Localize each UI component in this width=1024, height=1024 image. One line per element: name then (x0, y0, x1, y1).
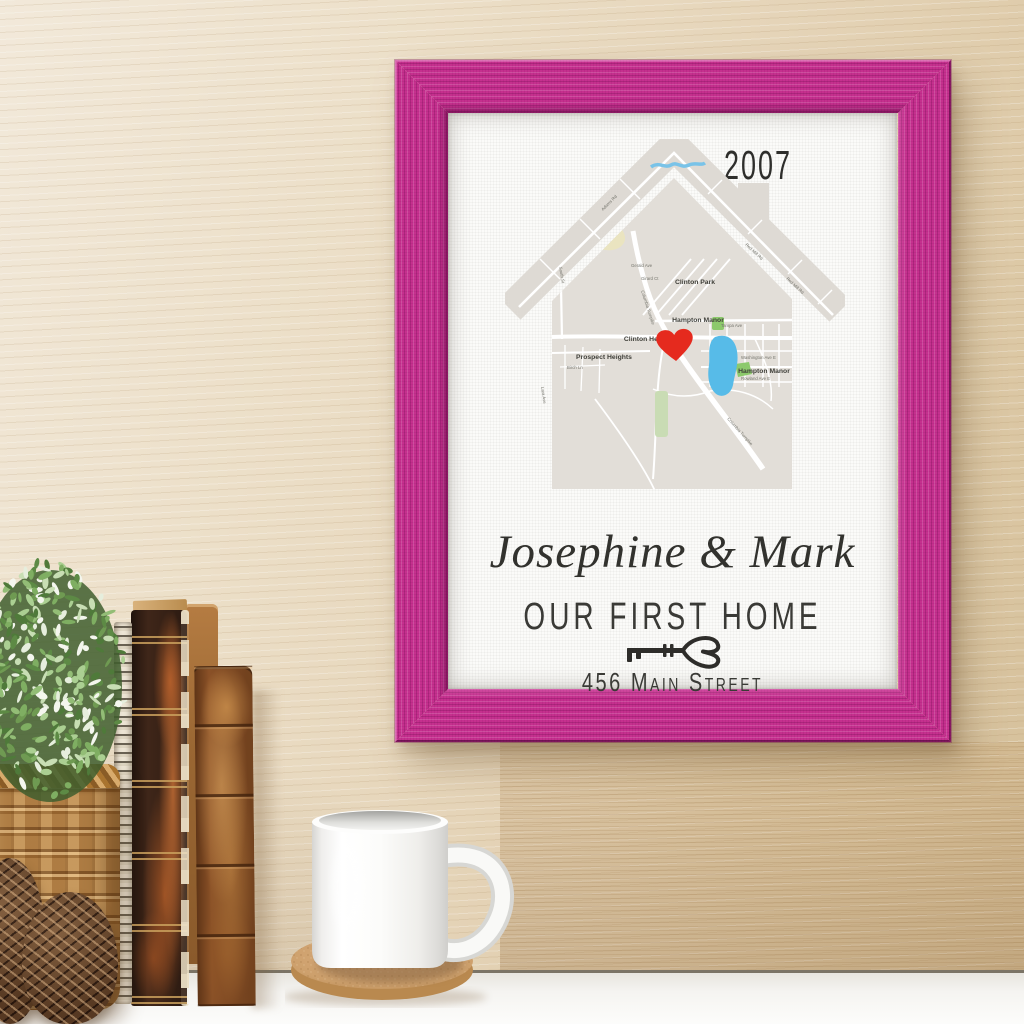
mug-highlight (331, 845, 363, 929)
subtitle-text: OUR FIRST HOME (448, 595, 897, 638)
svg-text:Birch Ln: Birch Ln (567, 365, 583, 370)
svg-text:Washington Ave E: Washington Ave E (741, 355, 776, 360)
frame-rail-left (395, 60, 448, 742)
wood-grain-lower (500, 742, 1024, 971)
pinecone (22, 892, 118, 1024)
scene: 2007 (0, 0, 1024, 1024)
svg-text:Prospect Heights: Prospect Heights (576, 354, 632, 361)
svg-text:Lara Ave: Lara Ave (540, 386, 547, 404)
books-cast-shadow (252, 690, 280, 1008)
couple-names: Josephine & Mark (448, 525, 897, 579)
svg-text:Hampton Manor: Hampton Manor (672, 317, 724, 324)
svg-text:Hampton Manor: Hampton Manor (738, 368, 790, 375)
mug-interior (319, 811, 441, 830)
svg-text:Tampa Ave: Tampa Ave (721, 323, 743, 328)
book-spine-leather-right (194, 666, 256, 1007)
frame-rail-top (395, 60, 951, 113)
svg-text:Gerald Ave: Gerald Ave (631, 263, 653, 268)
svg-text:Girard Ct: Girard Ct (641, 276, 659, 281)
key-icon (619, 633, 727, 669)
house-shaped-map: Columbia Turnpike Columbia Turnpike Red … (505, 139, 845, 494)
mug-and-coaster (285, 792, 525, 1010)
svg-text:Clinton Park: Clinton Park (675, 279, 715, 286)
art-canvas: 2007 (448, 113, 897, 689)
svg-text:Rowland Ave E: Rowland Ave E (741, 376, 770, 381)
address-text: 456 Main Street (448, 669, 897, 699)
plant-foliage (0, 536, 144, 820)
sage-strip (655, 391, 668, 437)
frame-rail-right (898, 60, 951, 742)
